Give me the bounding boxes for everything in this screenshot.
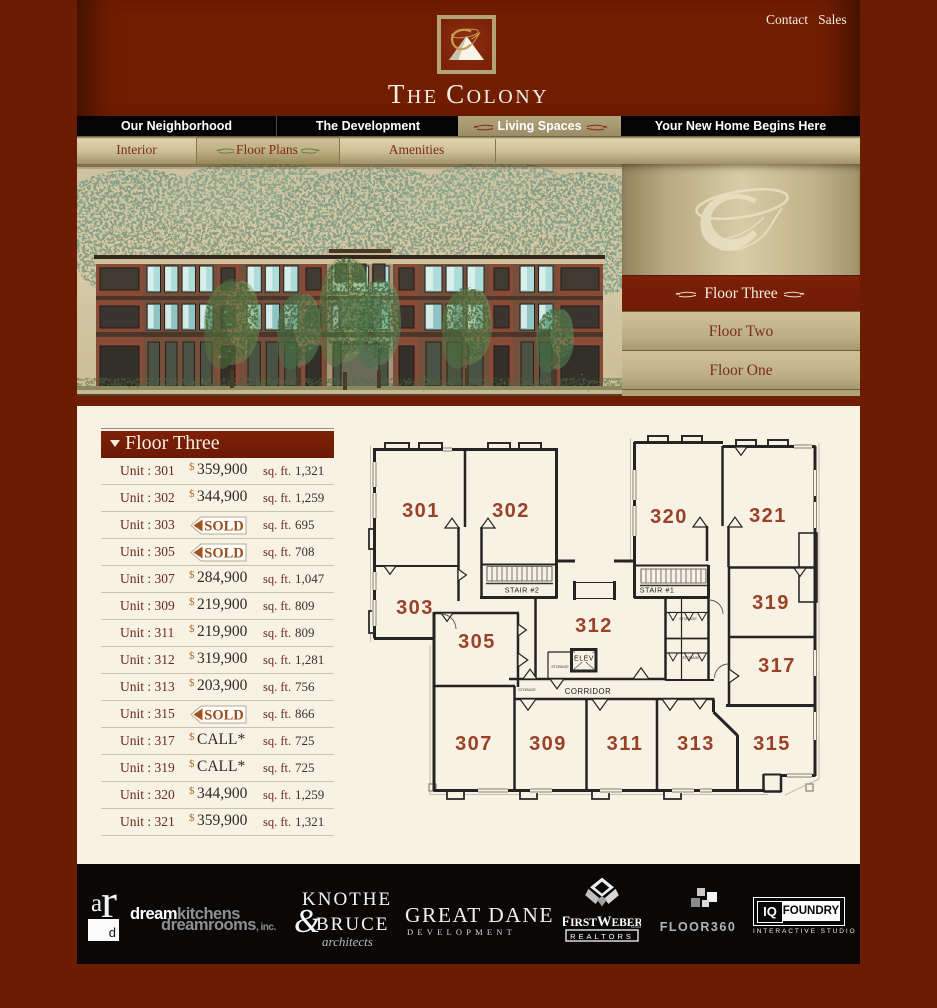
- svg-text:303: 303: [396, 597, 434, 619]
- svg-text:317: 317: [758, 655, 796, 677]
- svg-text:302: 302: [492, 500, 530, 522]
- svg-text:STORAGE: STORAGE: [518, 688, 536, 692]
- svg-text:311: 311: [607, 733, 644, 755]
- svg-text:STORAGE: STORAGE: [682, 656, 700, 660]
- svg-text:Group: Group: [631, 924, 641, 929]
- svg-text:STAIR #2: STAIR #2: [505, 586, 540, 595]
- svg-text:STORAGE: STORAGE: [679, 617, 697, 621]
- svg-text:307: 307: [455, 733, 493, 755]
- svg-text:320: 320: [650, 506, 688, 528]
- svg-text:CORRIDOR: CORRIDOR: [565, 687, 611, 696]
- svg-text:319: 319: [752, 592, 790, 614]
- svg-text:SOLD: SOLD: [204, 545, 244, 561]
- svg-text:STORAGE: STORAGE: [551, 665, 569, 669]
- svg-text:315: 315: [753, 733, 791, 755]
- svg-text:305: 305: [458, 631, 496, 653]
- svg-text:ELEV: ELEV: [574, 656, 594, 663]
- svg-text:312: 312: [575, 615, 613, 637]
- svg-text:FLOOR360: FLOOR360: [660, 920, 737, 934]
- svg-text:REALTORS: REALTORS: [570, 932, 634, 941]
- svg-text:321: 321: [749, 505, 787, 527]
- svg-text:STAIR #1: STAIR #1: [640, 586, 675, 595]
- svg-text:SOLD: SOLD: [204, 518, 244, 534]
- svg-text:301: 301: [402, 500, 440, 522]
- svg-text:SOLD: SOLD: [204, 707, 244, 723]
- svg-text:FIRSTWEBER: FIRSTWEBER: [563, 914, 641, 930]
- svg-text:309: 309: [529, 733, 567, 755]
- svg-text:313: 313: [677, 733, 715, 755]
